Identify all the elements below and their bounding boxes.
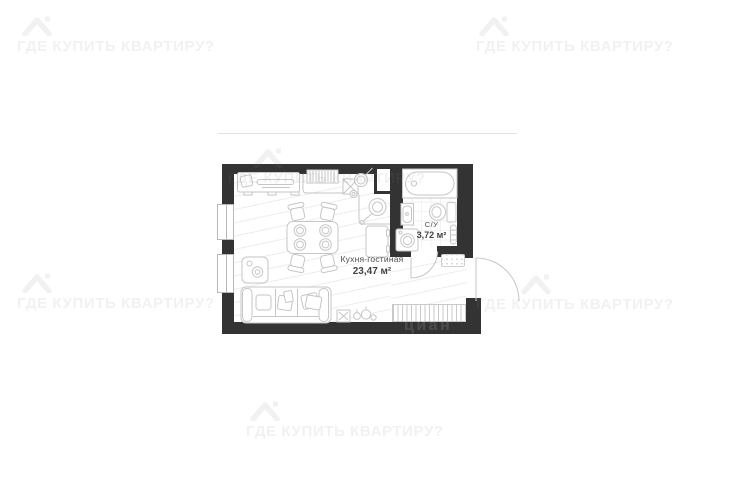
dining-chair — [288, 254, 307, 273]
house-roof-icon — [253, 146, 283, 168]
watermark: ГДЕ КУПИТЬ КВАРТИРУ? — [17, 271, 215, 312]
fridge — [366, 226, 390, 257]
watermark: ГДЕ КУПИТЬ КВАРТИРУ? — [476, 14, 674, 55]
watermark-text: ГДЕ КУПИТЬ КВАРТИРУ? — [476, 38, 674, 55]
dining-chair — [288, 202, 307, 221]
watermark: ГДЕ КУПИТЬ КВАРТИРУ? — [476, 272, 674, 313]
watermark: ГДЕ КУПИТЬ КВАРТИРУ? — [246, 399, 444, 440]
dining-chair — [318, 202, 337, 221]
watermark: ГДЕ КУПИТЬ КВАРТИРУ? — [17, 14, 215, 55]
house-roof-icon — [521, 272, 551, 294]
side-table-lamp — [242, 257, 268, 283]
house-roof-icon — [250, 399, 280, 421]
watermark-text: ГДЕ КУПИТЬ КВАРТИРУ? — [476, 296, 674, 313]
kitchen-living-area: 23,47 м² — [327, 266, 417, 277]
house-roof-icon — [479, 14, 509, 36]
watermark: ГДЕ КУПИТЬ КВАРТИРУ? — [228, 146, 426, 187]
floor-plan-page: Кухня-гостиная 23,47 м² С/У 3,72 м² циан… — [0, 0, 735, 480]
watermark-text: ГДЕ КУПИТЬ КВАРТИРУ? — [228, 170, 426, 187]
house-roof-icon — [22, 271, 52, 293]
kitchen-sink — [360, 199, 386, 225]
floor-decor — [337, 307, 376, 323]
bathroom-label: С/У — [408, 221, 455, 229]
kitchen-living-label: Кухня-гостиная — [327, 255, 417, 264]
brand-watermark: циан — [404, 317, 452, 335]
bathroom-area: 3,72 м² — [403, 231, 460, 241]
sofa — [241, 287, 331, 323]
watermark-text: ГДЕ КУПИТЬ КВАРТИРУ? — [17, 295, 215, 312]
watermark-text: ГДЕ КУПИТЬ КВАРТИРУ? — [246, 423, 444, 440]
watermark-text: ГДЕ КУПИТЬ КВАРТИРУ? — [17, 38, 215, 55]
house-roof-icon — [22, 14, 52, 36]
dining-table — [287, 222, 338, 254]
